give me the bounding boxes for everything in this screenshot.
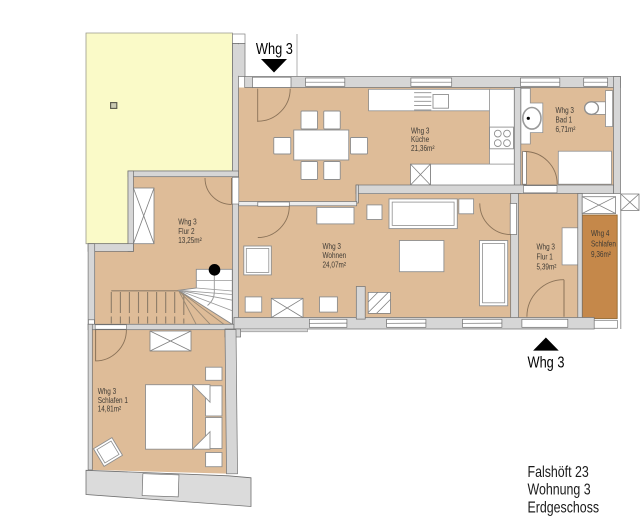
svg-text:Whg 3: Whg 3	[537, 242, 555, 252]
svg-text:14,81m²: 14,81m²	[98, 404, 122, 414]
svg-text:9,36m²: 9,36m²	[591, 249, 611, 259]
svg-text:Falshöft 23: Falshöft 23	[528, 463, 589, 481]
svg-text:Wohnung 3: Wohnung 3	[528, 480, 591, 498]
svg-text:Flur 1: Flur 1	[537, 252, 553, 262]
svg-text:Erdgeschoss: Erdgeschoss	[528, 498, 600, 516]
svg-text:13,25m²: 13,25m²	[178, 235, 202, 245]
svg-text:6,71m²: 6,71m²	[556, 124, 576, 134]
svg-text:Whg 3: Whg 3	[256, 41, 293, 59]
svg-text:Bad 1: Bad 1	[556, 115, 573, 125]
svg-text:Schlafen: Schlafen	[591, 239, 616, 249]
svg-text:24,07m²: 24,07m²	[323, 260, 347, 270]
svg-text:Whg 3: Whg 3	[528, 354, 565, 372]
svg-text:21,36m²: 21,36m²	[411, 143, 435, 153]
svg-text:5,39m²: 5,39m²	[537, 262, 557, 272]
svg-text:Whg 4: Whg 4	[591, 228, 609, 238]
